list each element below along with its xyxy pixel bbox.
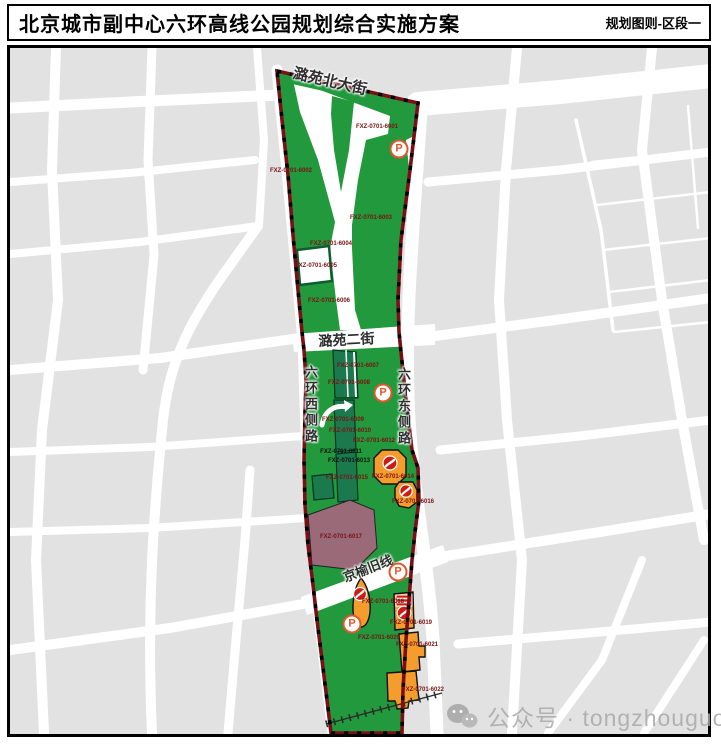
wechat-watermark: 公众号 · tongzhouguo <box>446 699 721 733</box>
header-bar: 北京城市副中心六环高线公园规划综合实施方案 规划图则-区段一 <box>7 4 711 41</box>
parcel-6005-white <box>297 246 332 285</box>
page-title: 北京城市副中心六环高线公园规划综合实施方案 <box>19 8 460 37</box>
station-icon <box>400 485 412 497</box>
parking-icon: P <box>390 140 409 159</box>
parking-icon: P <box>343 615 362 634</box>
station-icon <box>383 456 397 470</box>
wechat-icon <box>446 703 478 730</box>
parking-icon: P <box>389 563 408 582</box>
map-frame <box>7 45 711 737</box>
parking-icon: P <box>374 384 393 403</box>
watermark-text: 公众号 · tongzhouguo <box>487 699 721 733</box>
planning-sheet: 北京城市副中心六环高线公园规划综合实施方案 规划图则-区段一 <box>0 0 721 744</box>
planning-map <box>10 48 708 734</box>
station-icon <box>354 588 367 601</box>
section-label: 规划图则-区段一 <box>606 13 701 32</box>
